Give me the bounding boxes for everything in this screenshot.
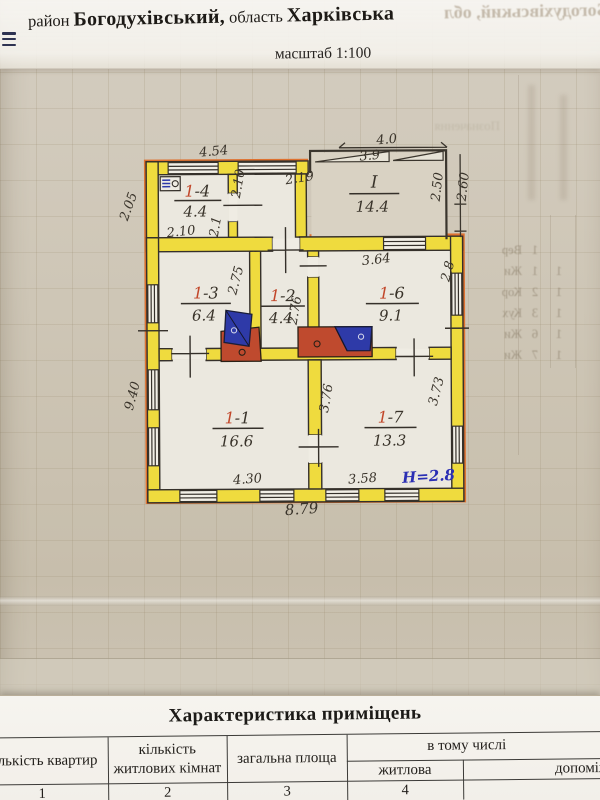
room-1-6-label: 1-6 <box>379 283 405 302</box>
col-header-auxiliary-area: допоміжна <box>463 758 600 780</box>
room-I-area: 14.4 <box>356 198 390 216</box>
dim-annex-left: 2.05 <box>117 191 141 224</box>
header-strip: Богодухівський, обл район Богодухівський… <box>0 0 600 69</box>
col-header-living-area: житлова <box>347 761 463 781</box>
sheet-edge-band <box>0 658 600 696</box>
scale-label: масштаб 1:100 <box>23 42 600 66</box>
room-I-label: I <box>370 173 378 193</box>
paper-fold-crease <box>0 596 600 606</box>
col-header-apartments: кількість квартир <box>0 751 108 771</box>
column-number-3: 3 <box>227 783 347 800</box>
dim-main-left: 9.40 <box>122 380 144 412</box>
room-1-7-area: 13.3 <box>373 431 407 449</box>
dim-veranda-top-inner: 3.9 <box>359 148 381 165</box>
bleedthrough-header-text: Богодухівський, обл <box>443 0 600 23</box>
col-header-including: в тому числі <box>347 735 587 757</box>
room-1-4-area: 4.4 <box>182 202 207 220</box>
characteristics-table: кількість квартир кількість житлових кім… <box>0 730 600 800</box>
col-header-total-area: загальна площа <box>227 749 347 769</box>
room-1-7-label: 1-7 <box>378 407 405 426</box>
dim-main-bottom: 8.79 <box>284 499 319 519</box>
district-name: Богодухівський, <box>73 6 225 31</box>
dim-veranda-top-outer: 4.0 <box>375 132 398 149</box>
region-name: Харківська <box>287 2 395 26</box>
stove-2 <box>298 327 372 357</box>
characteristics-sheet: Характеристика приміщень кількість кварт… <box>0 695 600 800</box>
table-title: Характеристика приміщень <box>0 700 590 729</box>
dim-room11-width: 4.30 <box>232 471 263 488</box>
col-header-living-rooms: кількість житлових кімнат <box>108 740 227 779</box>
document-header: район Богодухівський, область Харківська <box>28 2 395 32</box>
header-middle: область <box>229 7 283 27</box>
column-number-2: 2 <box>108 784 227 800</box>
room-1-4-label: 1-4 <box>184 181 210 200</box>
column-number-4: 4 <box>347 782 463 800</box>
room-1-3-area: 6.4 <box>192 306 216 324</box>
gas-stove-icon <box>160 177 180 191</box>
ceiling-height-note: Н=2.8 <box>401 466 456 487</box>
dim-room17-width: 3.58 <box>348 471 378 488</box>
scanned-document-page: Позначення Вер1 Жи11 Кор21 Кух31 Жи61 Жи… <box>0 0 600 800</box>
dim-annex-top: 4.54 <box>198 143 229 161</box>
room-1-1-label: 1-1 <box>225 408 251 427</box>
room-1-6-area: 9.1 <box>379 306 403 324</box>
room-1-1-area: 16.6 <box>220 432 254 450</box>
binding-marks <box>2 32 16 49</box>
room-1-3-label: 1-3 <box>193 283 219 302</box>
header-prefix: район <box>28 11 70 31</box>
dim-veranda-right-outer: 2.60 <box>455 171 473 202</box>
dim-room16-width: 3.64 <box>361 251 391 269</box>
column-number-1: 1 <box>0 785 108 800</box>
